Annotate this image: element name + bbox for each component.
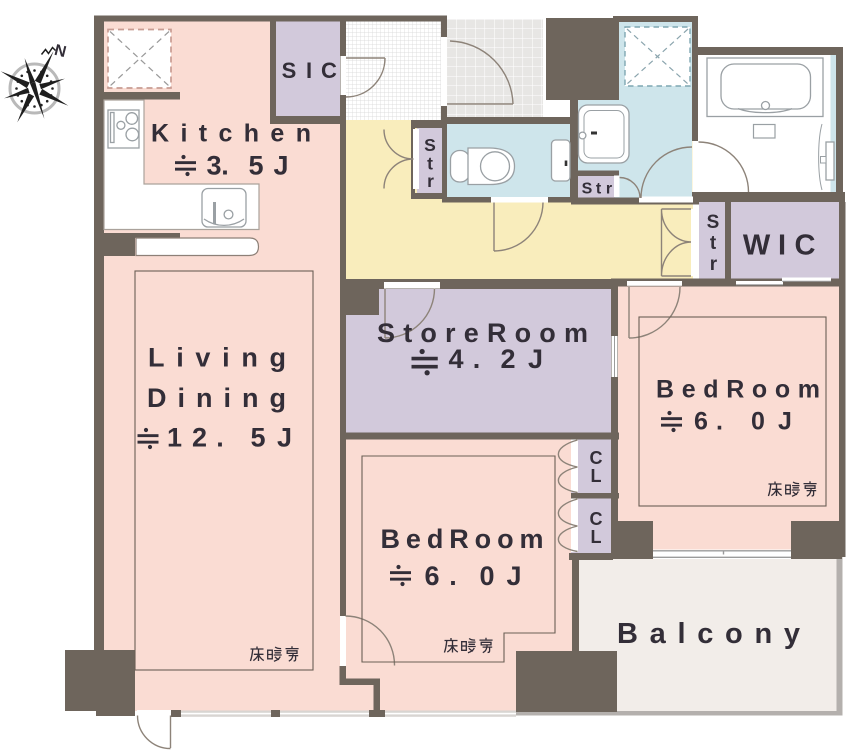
svg-text:r: r bbox=[710, 254, 718, 275]
svg-text:S: S bbox=[282, 58, 297, 83]
svg-text:.: . bbox=[449, 561, 457, 591]
svg-text:J: J bbox=[528, 344, 543, 374]
svg-text:I: I bbox=[306, 58, 312, 83]
svg-text:J: J bbox=[778, 408, 792, 436]
svg-text:L: L bbox=[591, 466, 602, 486]
svg-text:t: t bbox=[596, 181, 602, 198]
svg-text:.: . bbox=[216, 423, 224, 453]
svg-text:1: 1 bbox=[167, 423, 182, 453]
svg-text:t: t bbox=[710, 233, 717, 254]
svg-text:BedRoom: BedRoom bbox=[381, 524, 544, 554]
svg-text:0: 0 bbox=[751, 408, 765, 436]
svg-text:.: . bbox=[473, 344, 481, 374]
svg-text:r: r bbox=[427, 171, 434, 191]
svg-text:2: 2 bbox=[500, 344, 515, 374]
svg-text:5: 5 bbox=[248, 151, 263, 181]
svg-text:.: . bbox=[221, 151, 229, 181]
svg-text:W: W bbox=[743, 230, 771, 262]
svg-text:3: 3 bbox=[206, 151, 221, 181]
svg-text:4: 4 bbox=[448, 344, 463, 374]
svg-text:0: 0 bbox=[479, 561, 494, 591]
svg-text:5: 5 bbox=[250, 423, 265, 453]
svg-text:S: S bbox=[707, 212, 720, 233]
svg-text:J: J bbox=[273, 151, 288, 181]
svg-text:J: J bbox=[506, 561, 521, 591]
svg-text:S: S bbox=[424, 135, 436, 155]
svg-text:J: J bbox=[277, 423, 292, 453]
svg-text:I: I bbox=[778, 230, 786, 262]
svg-text:2: 2 bbox=[192, 423, 207, 453]
svg-text:C: C bbox=[590, 509, 603, 529]
svg-text:.: . bbox=[716, 408, 723, 436]
svg-text:6: 6 bbox=[694, 408, 708, 436]
svg-text:r: r bbox=[606, 181, 612, 198]
svg-text:C: C bbox=[590, 448, 603, 468]
svg-text:6: 6 bbox=[424, 561, 439, 591]
svg-text:S: S bbox=[582, 181, 593, 198]
svg-text:C: C bbox=[795, 230, 816, 262]
svg-text:C: C bbox=[321, 58, 337, 83]
svg-text:L: L bbox=[591, 527, 602, 547]
